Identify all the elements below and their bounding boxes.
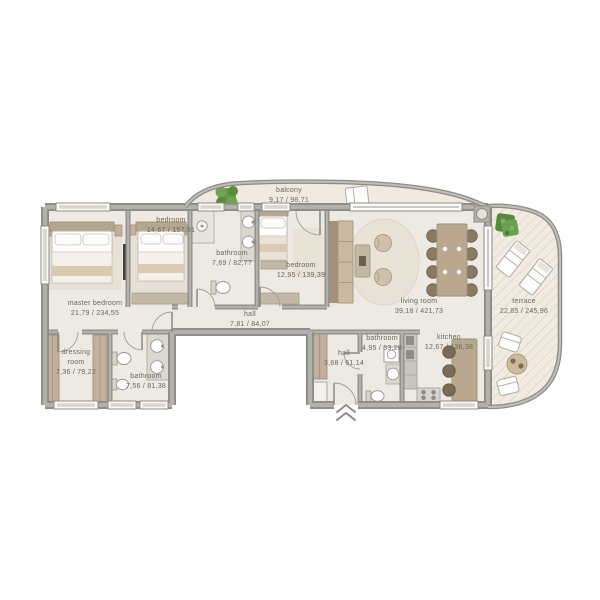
bedroom-left-bed: [130, 222, 191, 281]
window: [238, 203, 254, 211]
bidet-bowl: [117, 379, 129, 389]
kitchen-units: [403, 333, 417, 389]
toilet-bowl: [117, 353, 131, 365]
sink: [387, 368, 399, 380]
floor-terrace: [488, 206, 560, 407]
kitchen-island: [452, 339, 477, 403]
floor-plan-image: balcony 9,17 / 98,71 bedroom 14,67 / 157…: [0, 0, 600, 600]
master-bed: [44, 222, 122, 283]
window: [41, 226, 49, 284]
sofa: [329, 221, 353, 303]
window: [198, 203, 224, 211]
toilet-tank: [211, 281, 216, 294]
toilet-tank: [366, 391, 371, 402]
bedroom-left-dresser: [132, 293, 188, 304]
window: [440, 401, 478, 409]
terrace-round-table: [507, 354, 527, 374]
window: [140, 401, 168, 409]
sliding-door: [350, 203, 462, 211]
hall-wardrobe: [312, 334, 327, 402]
stove: [417, 388, 440, 402]
window: [56, 203, 110, 211]
column: [474, 206, 490, 222]
floor-plan-drawing: [0, 0, 600, 600]
terrace-hatch: [488, 206, 560, 407]
window: [484, 336, 492, 370]
sliding-door: [484, 226, 492, 290]
bar-stools: [443, 346, 455, 396]
toilet-bowl: [216, 282, 230, 294]
toilet-bowl: [371, 391, 384, 402]
entrance-chevron-icon: [337, 405, 355, 420]
window: [262, 203, 290, 211]
washing-machine: [384, 347, 399, 362]
coffee-table: [355, 245, 370, 277]
toilet-tank: [112, 352, 117, 365]
window: [108, 401, 136, 409]
window: [54, 401, 98, 409]
bedroom-mid-bed: [258, 209, 288, 269]
dining-table: [437, 224, 467, 296]
